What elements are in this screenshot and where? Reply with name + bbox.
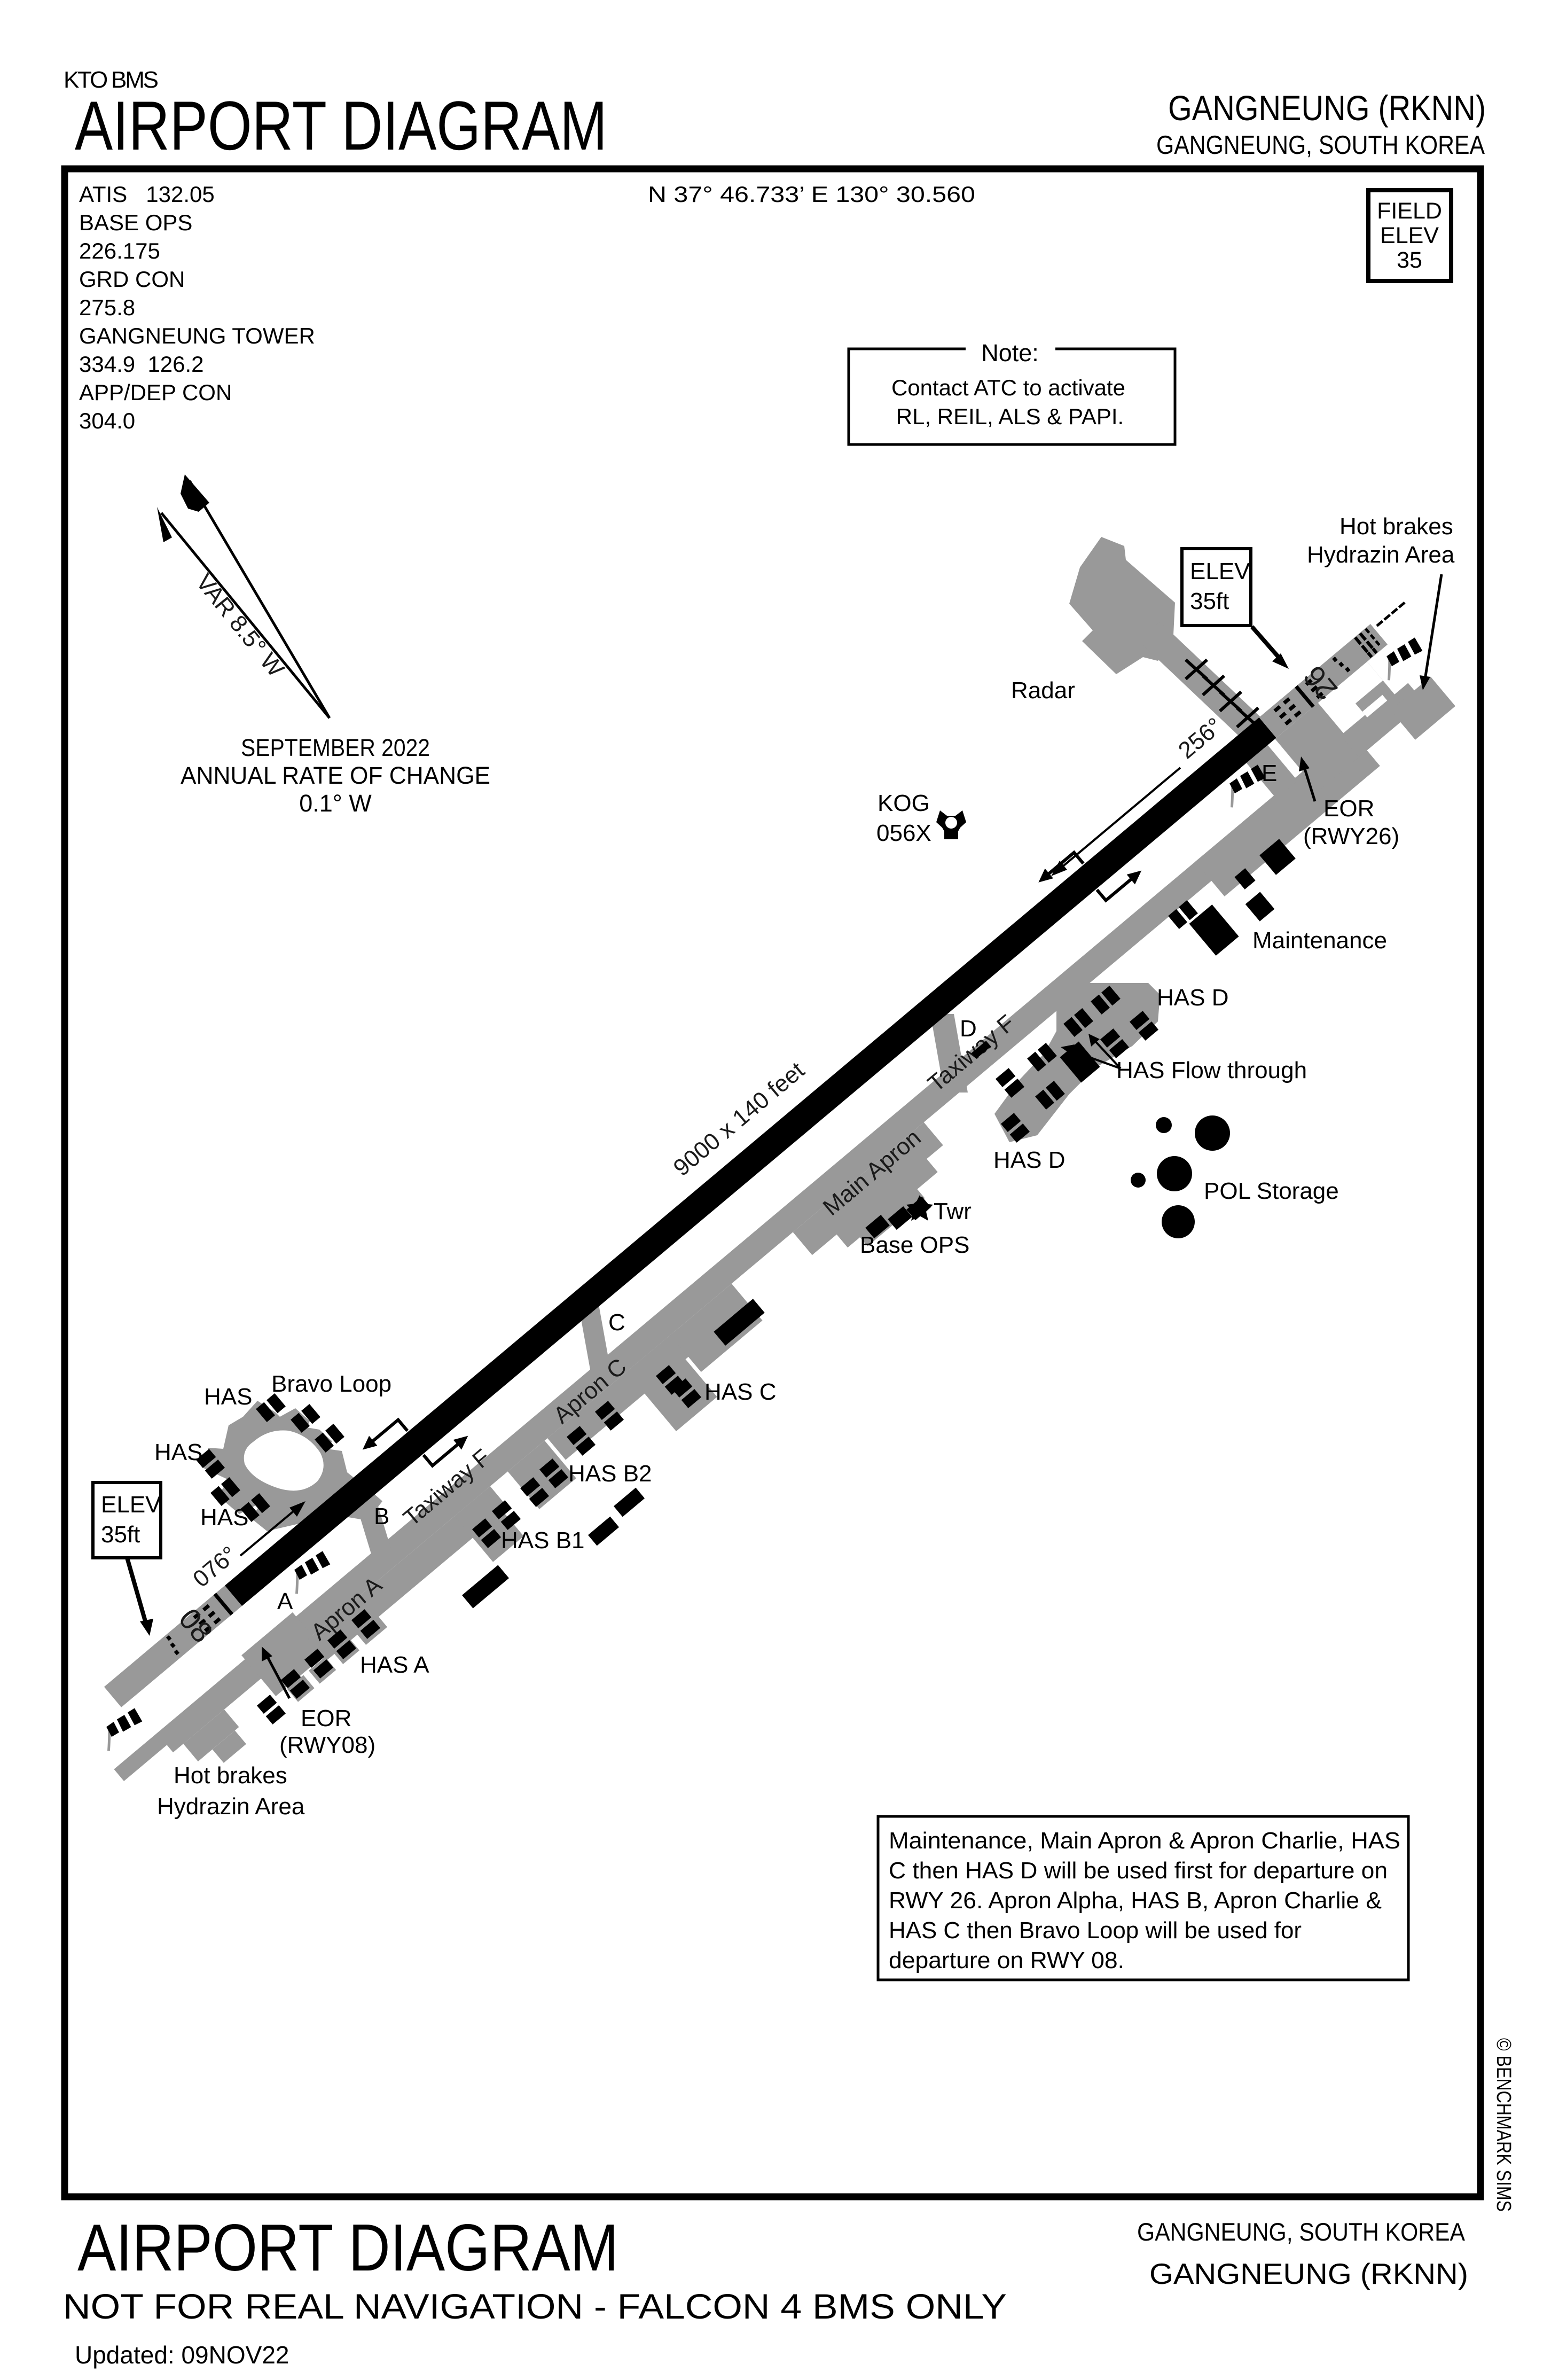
svg-text:FIELD: FIELD — [1377, 198, 1442, 224]
svg-text:226.175: 226.175 — [79, 238, 160, 263]
svg-text:SEPTEMBER 2022: SEPTEMBER 2022 — [241, 734, 430, 761]
svg-text:RL, REIL, ALS & PAPI.: RL, REIL, ALS & PAPI. — [896, 404, 1124, 429]
svg-text:HAS C: HAS C — [704, 1379, 776, 1405]
svg-text:ELEV: ELEV — [101, 1492, 161, 1518]
svg-text:Maintenance: Maintenance — [1252, 927, 1387, 954]
svg-text:HAS D: HAS D — [993, 1147, 1065, 1173]
svg-text:AIRPORT DIAGRAM: AIRPORT DIAGRAM — [75, 87, 607, 165]
svg-text:35ft: 35ft — [1190, 588, 1229, 614]
svg-text:AIRPORT DIAGRAM: AIRPORT DIAGRAM — [77, 2211, 618, 2285]
svg-text:ELEV: ELEV — [1190, 558, 1250, 584]
svg-text:ANNUAL RATE OF CHANGE: ANNUAL RATE OF CHANGE — [181, 762, 490, 789]
svg-text:ELEV: ELEV — [1380, 223, 1439, 248]
svg-text:Updated: 09NOV22: Updated: 09NOV22 — [75, 2341, 289, 2369]
svg-text:GRD CON: GRD CON — [79, 267, 185, 292]
svg-text:EOR: EOR — [1323, 795, 1374, 822]
svg-text:E: E — [1262, 760, 1277, 786]
svg-text:056X: 056X — [876, 820, 931, 846]
svg-text:Note:: Note: — [981, 339, 1039, 366]
svg-text:NOT FOR REAL NAVIGATION - FALC: NOT FOR REAL NAVIGATION - FALCON 4 BMS O… — [63, 2287, 1007, 2326]
svg-text:35ft: 35ft — [101, 1521, 140, 1548]
svg-text:275.8: 275.8 — [79, 295, 135, 320]
svg-text:Hot brakes: Hot brakes — [174, 1762, 287, 1789]
svg-text:GANGNEUNG, SOUTH KOREA: GANGNEUNG, SOUTH KOREA — [1137, 2218, 1466, 2246]
svg-text:(RWY26): (RWY26) — [1303, 823, 1399, 849]
svg-text:Bravo Loop: Bravo Loop — [271, 1371, 391, 1397]
svg-text:35: 35 — [1397, 247, 1422, 273]
svg-text:Radar: Radar — [1011, 677, 1075, 704]
svg-text:POL Storage: POL Storage — [1204, 1178, 1339, 1204]
svg-text:HAS: HAS — [204, 1384, 252, 1410]
svg-text:(RWY08): (RWY08) — [279, 1732, 375, 1758]
svg-text:Contact ATC to activate: Contact ATC to activate — [891, 375, 1125, 400]
svg-text:HAS A: HAS A — [360, 1652, 429, 1678]
svg-text:Hydrazin Area: Hydrazin Area — [157, 1793, 305, 1820]
svg-text:C: C — [608, 1309, 625, 1336]
svg-text:HAS B2: HAS B2 — [568, 1461, 652, 1487]
svg-text:GANGNEUNG (RKNN): GANGNEUNG (RKNN) — [1168, 88, 1486, 128]
svg-text:A: A — [277, 1588, 293, 1614]
svg-text:C then HAS D will be used firs: C then HAS D will be used first for depa… — [889, 1858, 1388, 1884]
svg-text:RWY 26. Apron Alpha, HAS B, Ap: RWY 26. Apron Alpha, HAS B, Apron Charli… — [889, 1887, 1382, 1914]
svg-text:GANGNEUNG TOWER: GANGNEUNG TOWER — [79, 323, 315, 348]
svg-text:B: B — [374, 1503, 389, 1530]
svg-text:GANGNEUNG, SOUTH KOREA: GANGNEUNG, SOUTH KOREA — [1156, 131, 1485, 160]
svg-text:HAS B1: HAS B1 — [501, 1527, 585, 1554]
svg-text:ATIS 132.05: ATIS 132.05 — [79, 182, 215, 207]
svg-text:N 37° 46.733’ E 130° 30.560: N 37° 46.733’ E 130° 30.560 — [648, 182, 975, 207]
svg-text:KOG: KOG — [878, 790, 930, 816]
svg-text:BASE OPS: BASE OPS — [79, 210, 192, 235]
svg-text:EOR: EOR — [301, 1705, 351, 1731]
svg-text:HAS: HAS — [154, 1439, 202, 1465]
svg-text:HAS Flow through: HAS Flow through — [1116, 1057, 1307, 1083]
svg-text:334.9 126.2: 334.9 126.2 — [79, 352, 204, 377]
svg-text:HAS D: HAS D — [1157, 985, 1228, 1011]
svg-text:0.1° W: 0.1° W — [299, 790, 372, 817]
svg-text:Hot brakes: Hot brakes — [1339, 513, 1453, 540]
svg-text:Hydrazin Area: Hydrazin Area — [1307, 542, 1455, 568]
svg-text:APP/DEP CON: APP/DEP CON — [79, 380, 232, 405]
svg-text:Twr: Twr — [934, 1198, 972, 1224]
svg-text:HAS C then Bravo Loop will be: HAS C then Bravo Loop will be used for — [889, 1917, 1302, 1944]
svg-text:GANGNEUNG (RKNN): GANGNEUNG (RKNN) — [1149, 2257, 1468, 2290]
svg-text:departure on RWY 08.: departure on RWY 08. — [889, 1947, 1124, 1973]
svg-text:© BENCHMARK SIMS: © BENCHMARK SIMS — [1492, 2038, 1515, 2212]
svg-text:Maintenance, Main Apron & Apro: Maintenance, Main Apron & Apron Charlie,… — [889, 1828, 1400, 1854]
svg-text:304.0: 304.0 — [79, 408, 135, 433]
